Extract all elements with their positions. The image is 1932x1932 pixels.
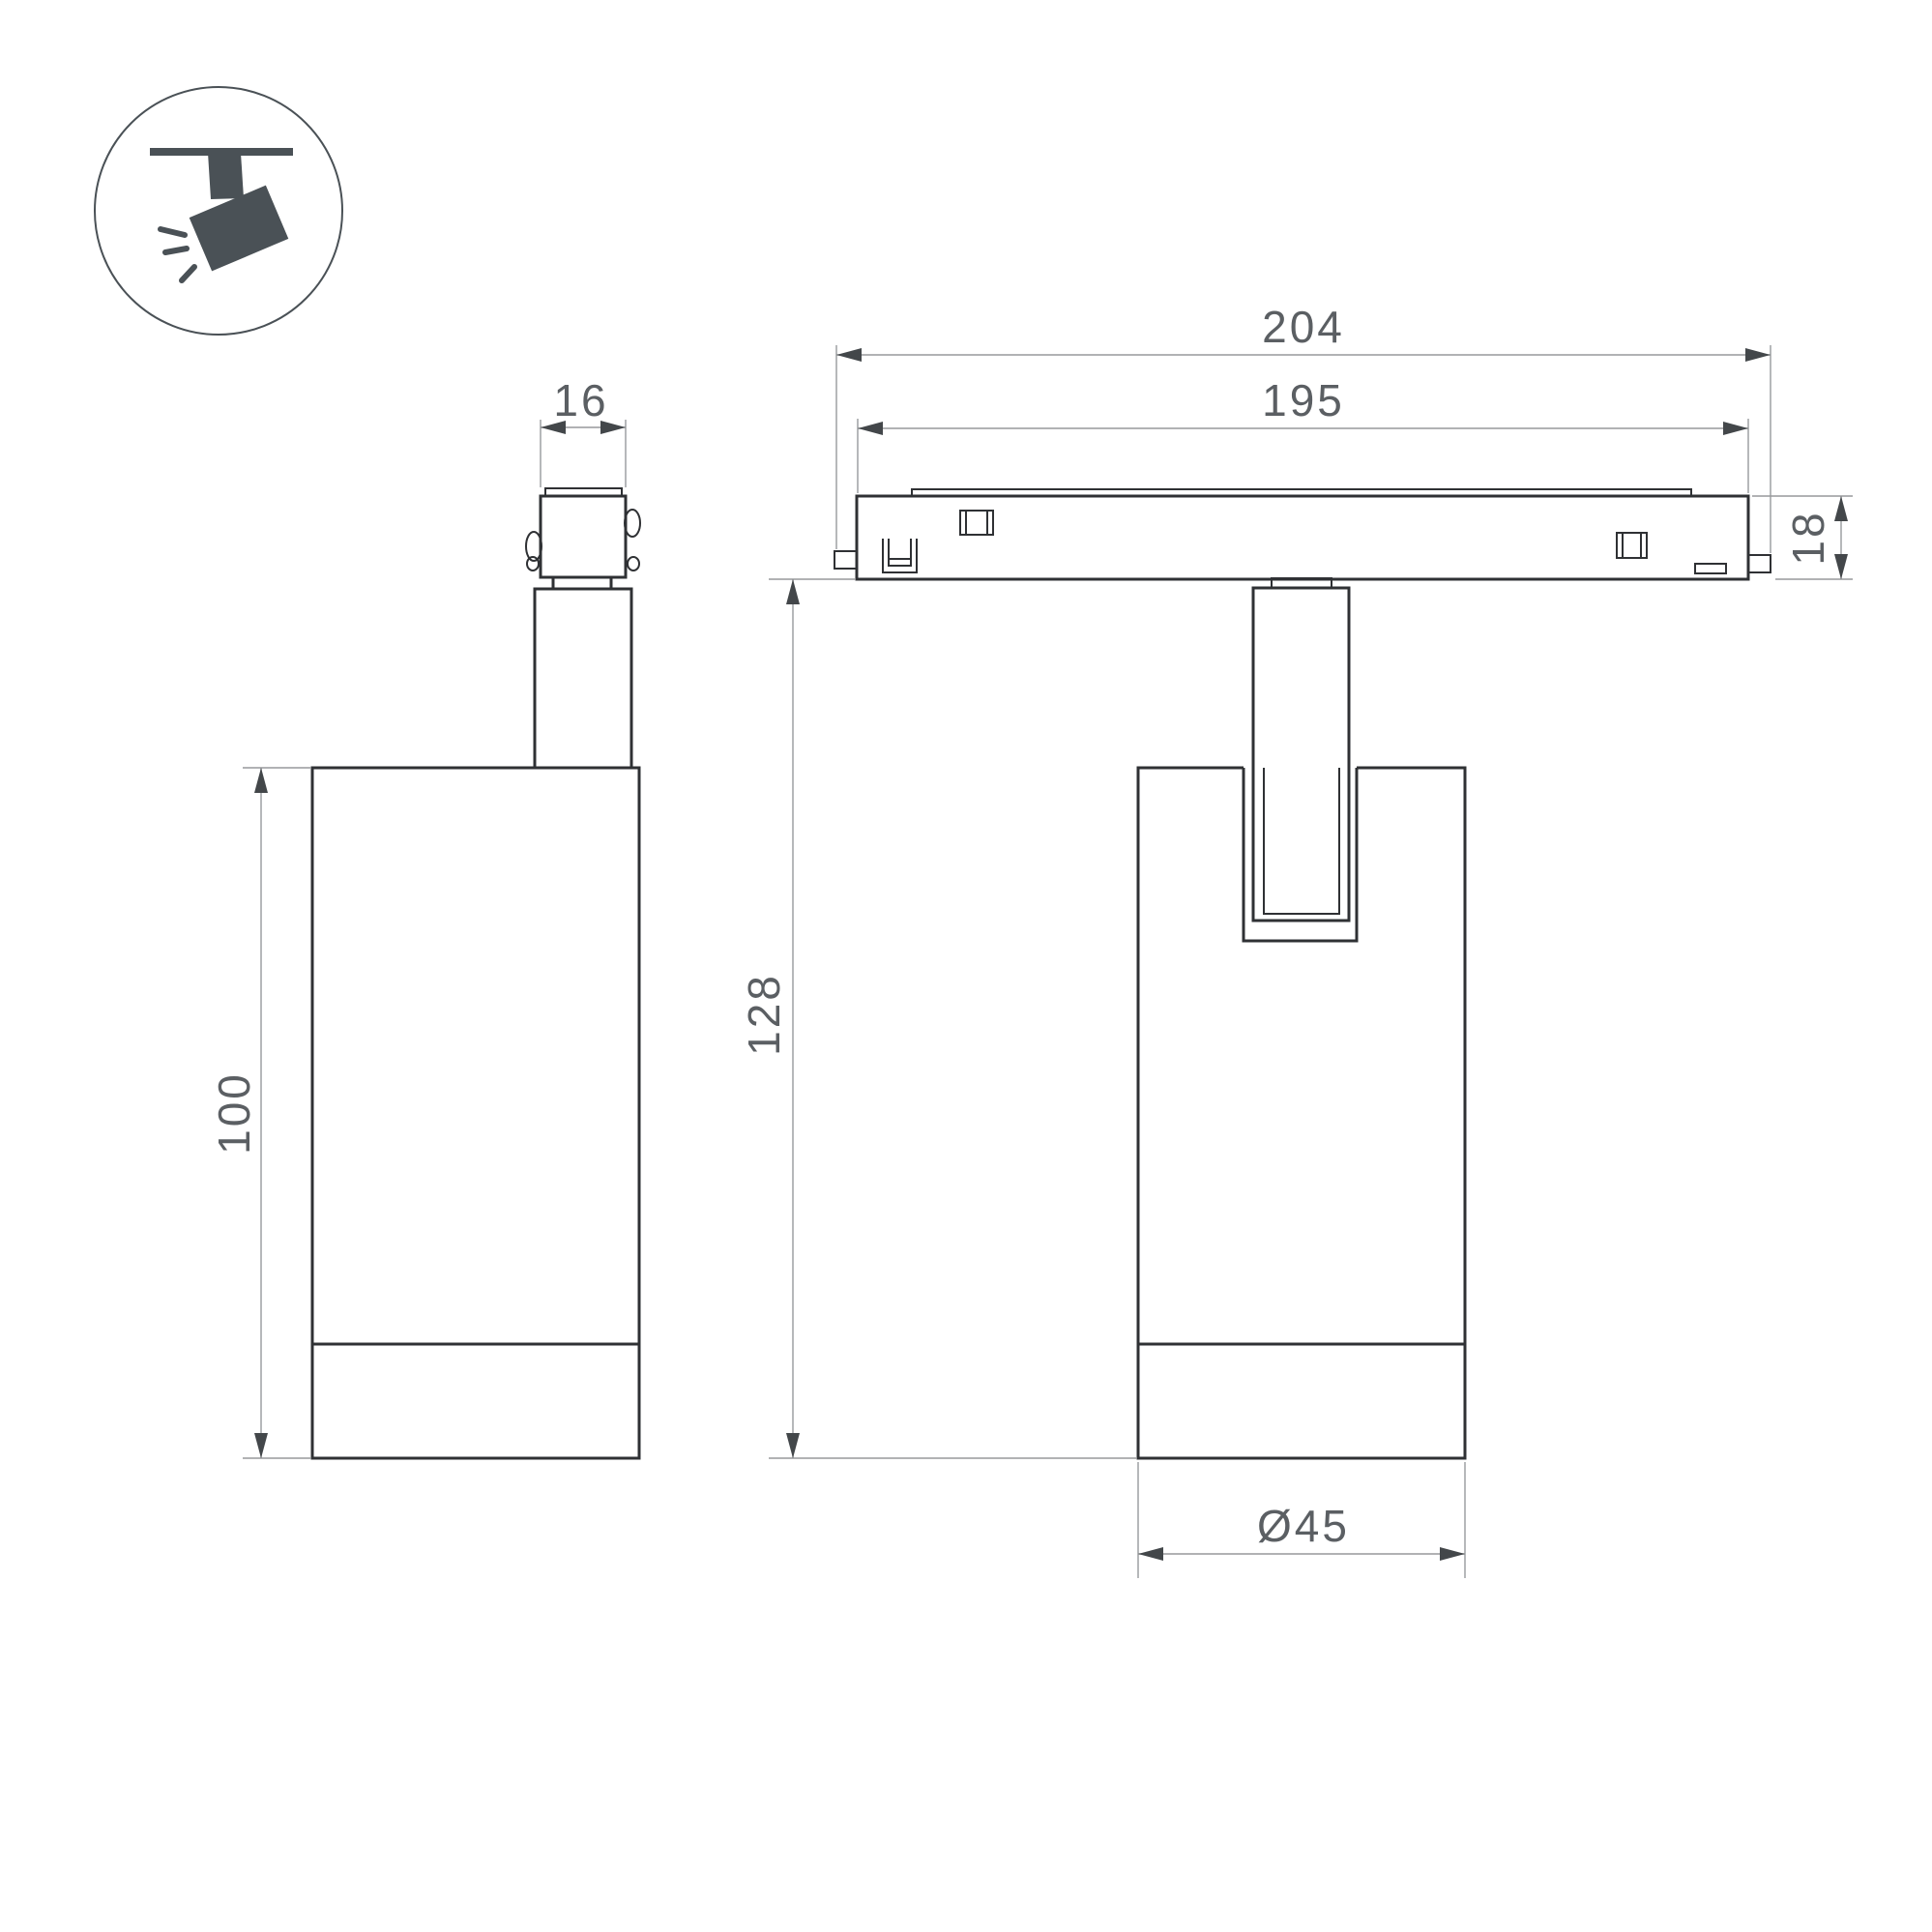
- side-neck: [553, 577, 611, 589]
- side-clip-left-loop: [527, 557, 539, 571]
- technical-drawing-canvas: 16 100: [0, 0, 1932, 1932]
- icon-light-ray: [182, 267, 194, 280]
- dim-track-inner: 195: [858, 375, 1748, 493]
- dim-label-d45: Ø45: [1257, 1501, 1350, 1551]
- dimension-drawing-svg: 16 100: [0, 0, 1932, 1932]
- dim-label-16: 16: [553, 375, 608, 425]
- side-view: 16 100: [209, 375, 640, 1458]
- dim-label-128: 128: [739, 973, 789, 1056]
- front-track-adapter-bar: [857, 496, 1748, 579]
- front-stem: [1253, 588, 1349, 921]
- icon-light-ray: [165, 249, 187, 252]
- dim-track-height: 18: [1752, 496, 1853, 579]
- side-stem: [535, 589, 631, 768]
- dim-body-height: 100: [209, 768, 310, 1458]
- side-clip-right-loop: [628, 557, 639, 571]
- dim-adapter-width: 16: [541, 375, 626, 487]
- dim-label-204: 204: [1262, 302, 1345, 352]
- dim-label-100: 100: [209, 1071, 259, 1155]
- track-spotlight-icon: [95, 87, 342, 335]
- front-left-contact-tab: [834, 551, 857, 569]
- side-lamp-body: [312, 768, 639, 1458]
- dim-label-195: 195: [1262, 375, 1345, 425]
- icon-light-ray: [161, 229, 185, 235]
- dim-label-18: 18: [1783, 510, 1833, 565]
- side-track-adapter: [541, 496, 626, 577]
- icon-spotlight-body: [190, 186, 289, 272]
- dim-total-height: 128: [739, 579, 1136, 1458]
- front-view: 204 195 18 128: [739, 302, 1853, 1578]
- icon-mount-stem: [208, 153, 244, 199]
- dim-body-diameter: Ø45: [1138, 1462, 1465, 1578]
- front-right-contact-tab: [1748, 555, 1771, 572]
